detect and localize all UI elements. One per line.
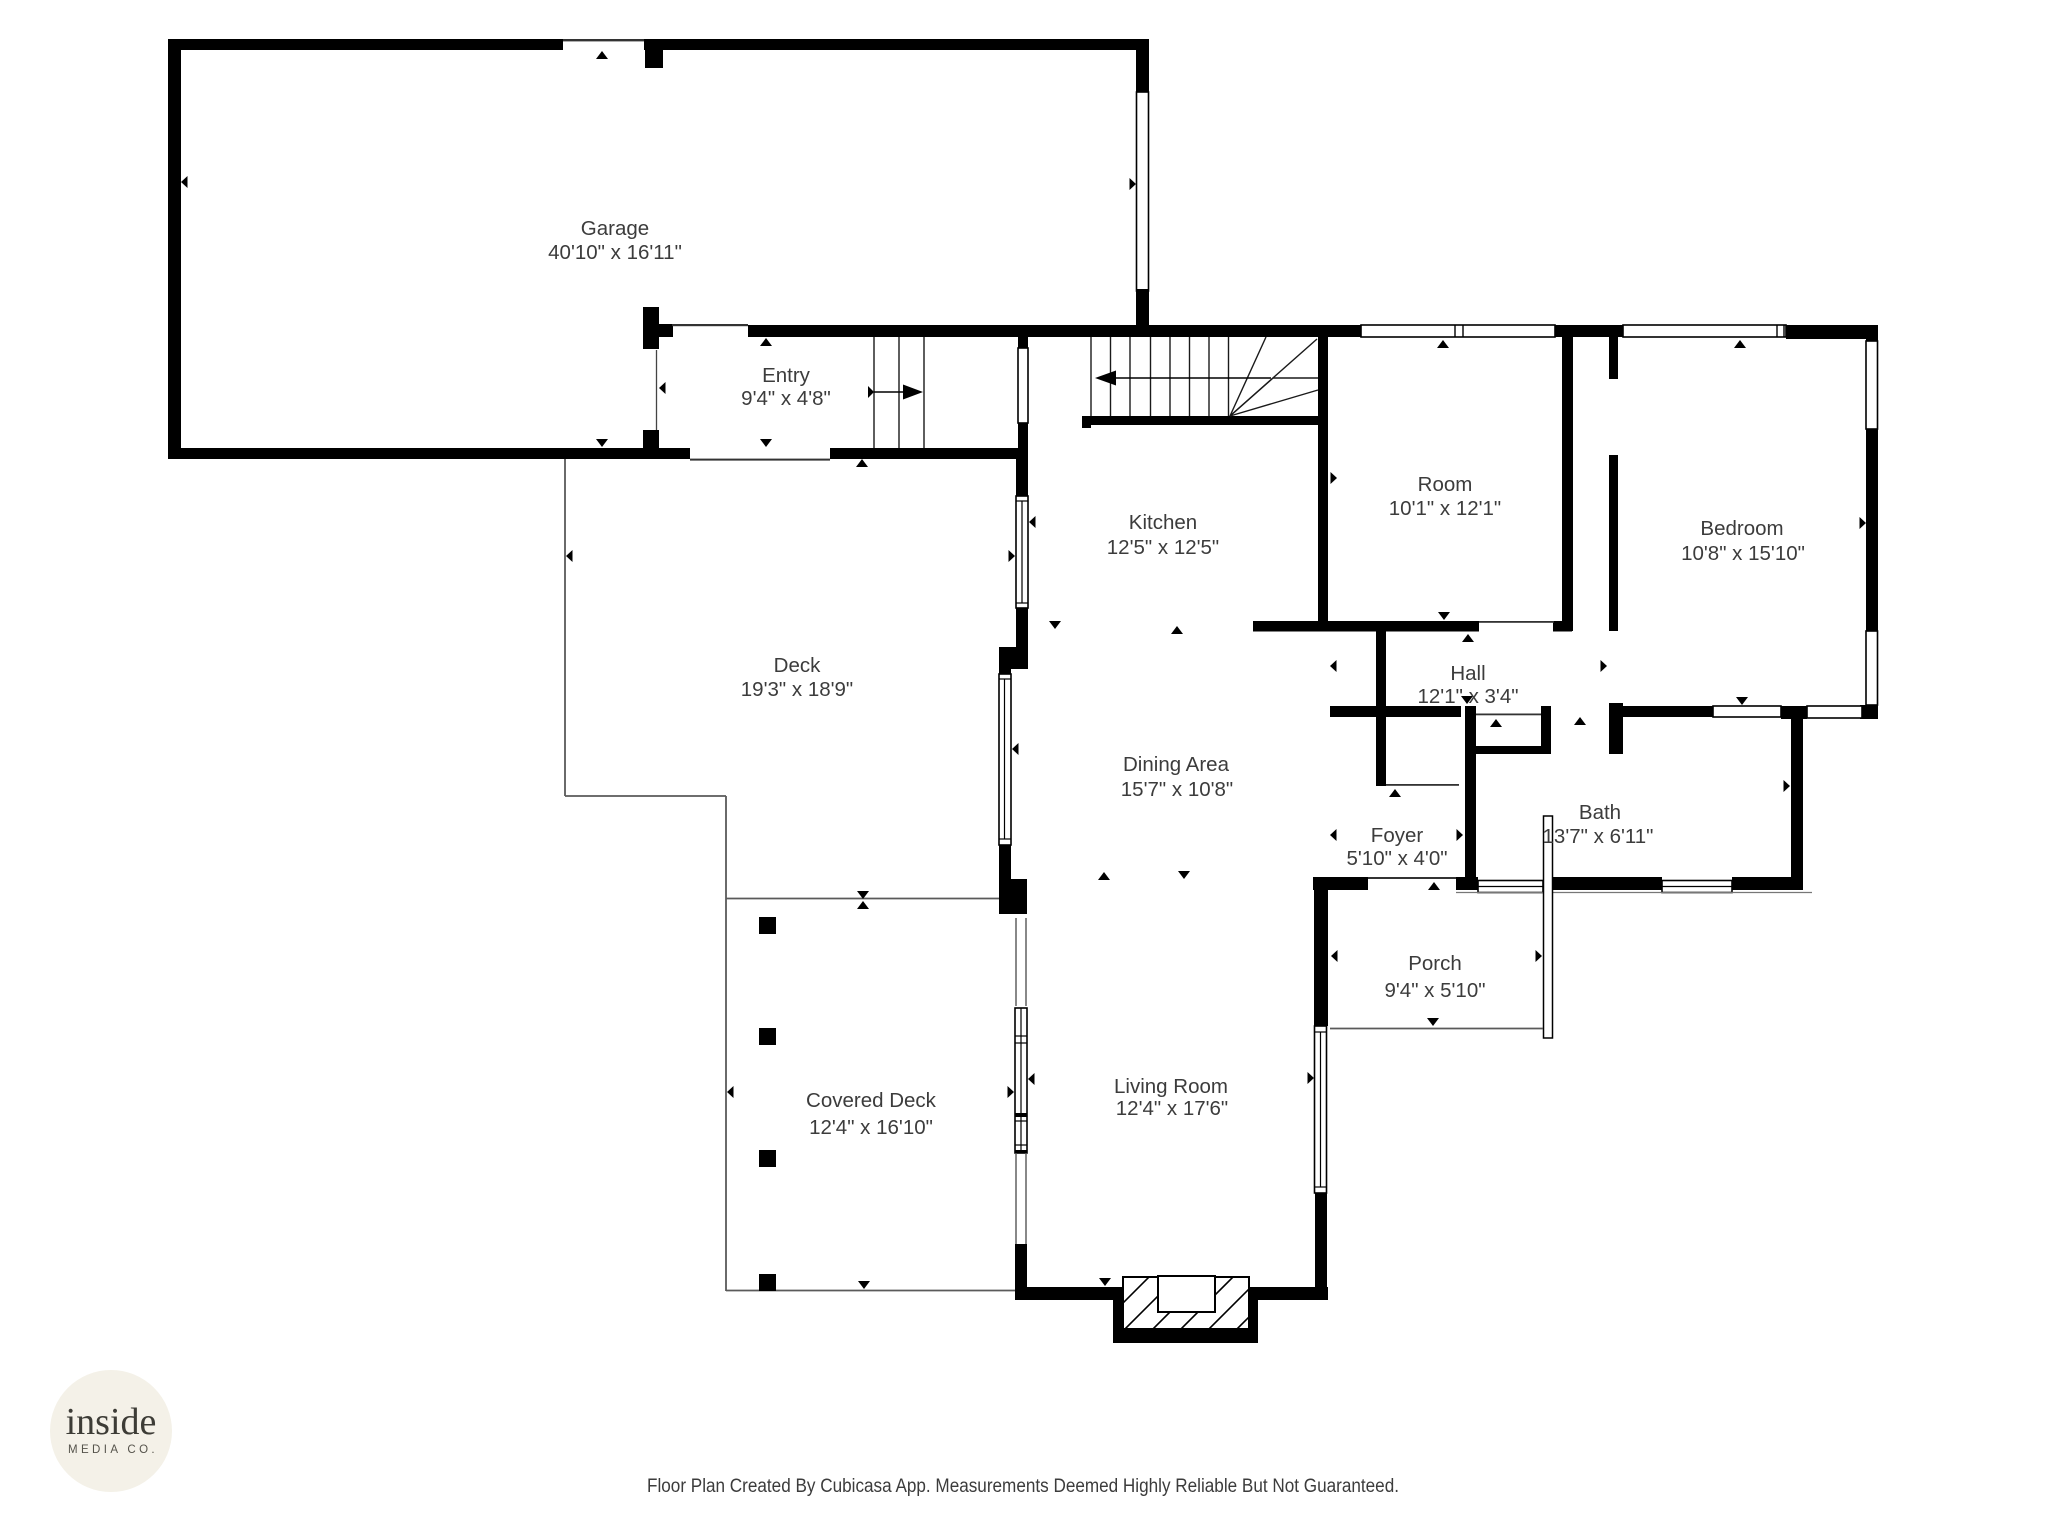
svg-text:9'4" x 5'10": 9'4" x 5'10" [1384, 979, 1485, 1002]
svg-text:Kitchen: Kitchen [1129, 511, 1197, 534]
svg-text:9'4" x 4'8": 9'4" x 4'8" [741, 387, 831, 410]
svg-text:Hall: Hall [1450, 662, 1485, 685]
svg-text:Dining Area: Dining Area [1123, 753, 1230, 776]
svg-text:19'3" x 18'9": 19'3" x 18'9" [741, 678, 853, 701]
svg-text:Room: Room [1418, 473, 1473, 496]
svg-text:inside: inside [66, 1401, 157, 1443]
svg-text:12'4" x 17'6": 12'4" x 17'6" [1116, 1097, 1228, 1120]
svg-text:13'7" x 6'11": 13'7" x 6'11" [1543, 825, 1654, 848]
svg-text:MEDIA CO.: MEDIA CO. [68, 1444, 158, 1456]
svg-text:12'1" x 3'4": 12'1" x 3'4" [1417, 685, 1518, 708]
svg-text:10'8" x 15'10": 10'8" x 15'10" [1681, 542, 1805, 565]
svg-text:12'5" x 12'5": 12'5" x 12'5" [1107, 536, 1219, 559]
svg-text:Living Room: Living Room [1114, 1075, 1228, 1098]
svg-text:Deck: Deck [774, 654, 821, 677]
svg-text:12'4" x 16'10": 12'4" x 16'10" [809, 1116, 933, 1139]
svg-text:Foyer: Foyer [1371, 824, 1424, 847]
svg-text:Bath: Bath [1579, 801, 1621, 824]
svg-text:Garage: Garage [581, 217, 649, 240]
svg-text:10'1" x 12'1": 10'1" x 12'1" [1389, 497, 1501, 520]
svg-text:5'10" x 4'0": 5'10" x 4'0" [1346, 847, 1447, 870]
svg-text:Porch: Porch [1408, 952, 1462, 975]
svg-text:Bedroom: Bedroom [1700, 517, 1783, 540]
svg-text:Covered Deck: Covered Deck [806, 1089, 937, 1112]
svg-text:Entry: Entry [762, 364, 811, 387]
svg-text:40'10" x 16'11": 40'10" x 16'11" [548, 241, 682, 264]
svg-text:15'7" x 10'8": 15'7" x 10'8" [1121, 778, 1233, 801]
svg-text:Floor Plan Created By Cubicasa: Floor Plan Created By Cubicasa App. Meas… [647, 1476, 1399, 1497]
